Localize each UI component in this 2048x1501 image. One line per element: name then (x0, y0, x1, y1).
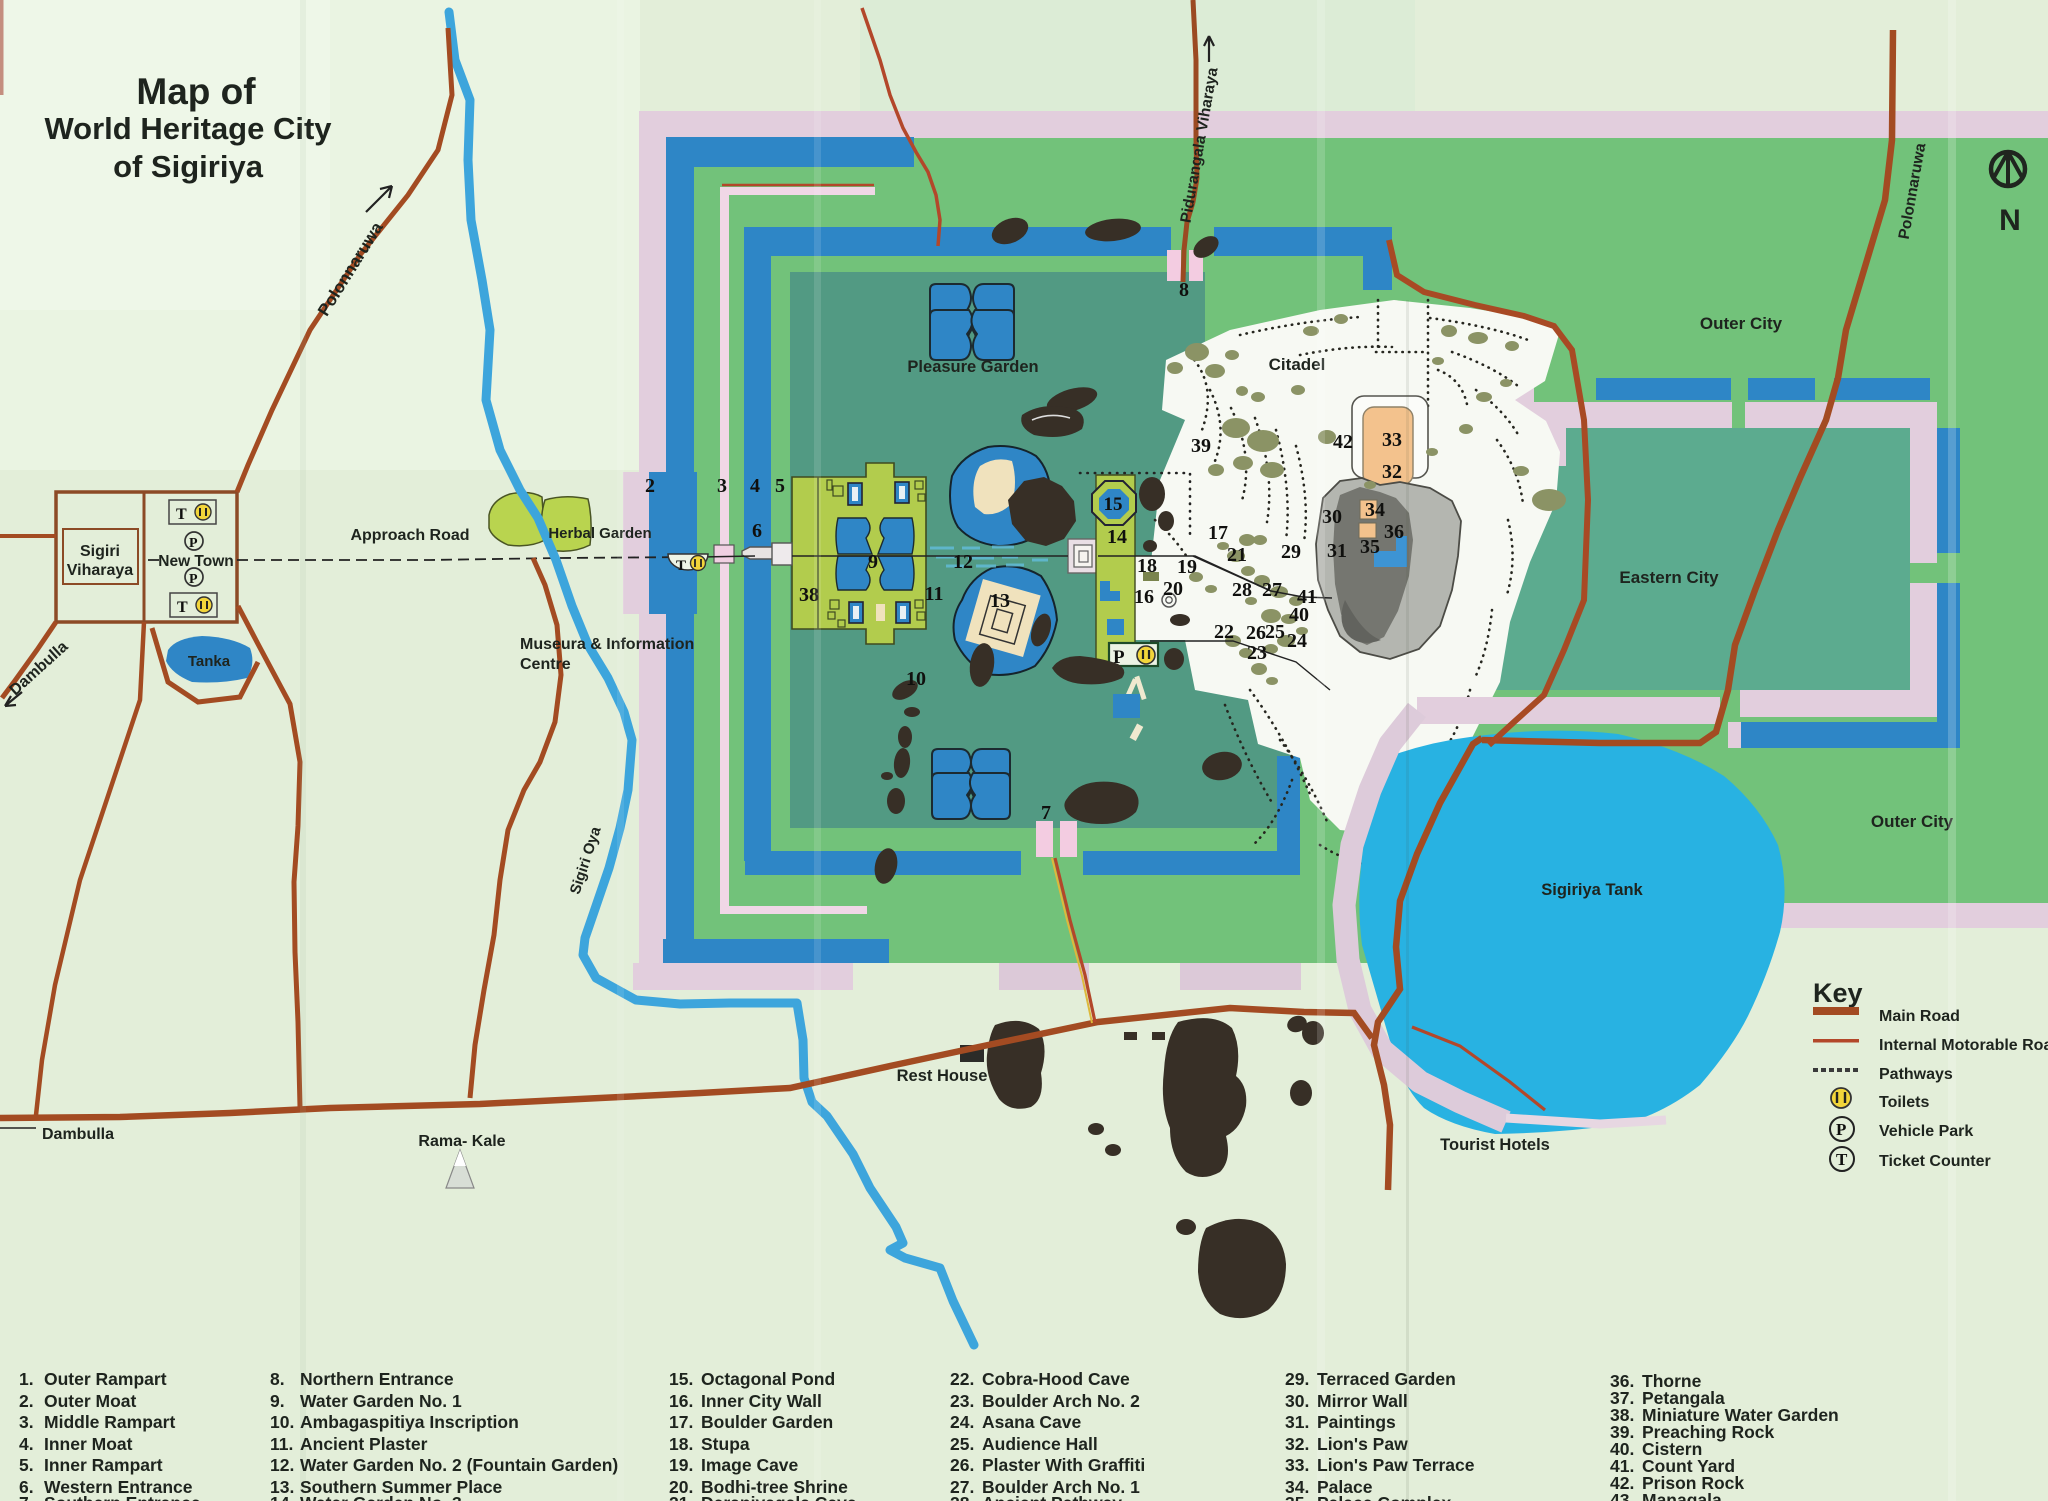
svg-text:Water Garden No. 2 (Fountain G: Water Garden No. 2 (Fountain Garden) (300, 1455, 618, 1475)
svg-text:9: 9 (868, 551, 878, 573)
svg-text:25: 25 (1265, 621, 1285, 643)
svg-text:18: 18 (1137, 555, 1157, 577)
svg-text:Octagonal Pond: Octagonal Pond (701, 1369, 835, 1389)
svg-text:26.: 26. (950, 1455, 974, 1475)
svg-text:Plaster With Graffiti: Plaster With Graffiti (982, 1455, 1145, 1475)
svg-text:Inner Rampart: Inner Rampart (44, 1455, 163, 1475)
svg-text:T: T (676, 558, 686, 574)
svg-text:9.: 9. (270, 1391, 285, 1411)
svg-text:42: 42 (1333, 431, 1353, 453)
svg-text:Lion's Paw: Lion's Paw (1317, 1434, 1408, 1454)
svg-text:16.: 16. (669, 1391, 693, 1411)
svg-text:Sigiriya Tank: Sigiriya Tank (1541, 881, 1643, 899)
svg-text:29.: 29. (1285, 1369, 1309, 1389)
svg-text:Rest House: Rest House (897, 1067, 988, 1085)
svg-text:Inner City Wall: Inner City Wall (701, 1391, 822, 1411)
svg-text:Image Cave: Image Cave (701, 1455, 799, 1475)
svg-text:15: 15 (1104, 494, 1123, 515)
svg-text:Approach Road: Approach Road (350, 527, 469, 544)
svg-text:Middle Rampart: Middle Rampart (44, 1412, 175, 1432)
svg-text:21: 21 (1227, 544, 1247, 566)
svg-text:12.: 12. (270, 1455, 294, 1475)
svg-text:7: 7 (1041, 802, 1051, 824)
svg-text:8.: 8. (270, 1369, 285, 1389)
svg-text:Palace Complex: Palace Complex (1317, 1493, 1451, 1501)
svg-text:Vehicle Park: Vehicle Park (1879, 1123, 1973, 1140)
svg-text:Mirror Wall: Mirror Wall (1317, 1391, 1408, 1411)
svg-text:36: 36 (1384, 521, 1404, 543)
svg-text:Sigiri: Sigiri (80, 543, 120, 560)
svg-text:10: 10 (906, 668, 926, 690)
svg-text:5: 5 (775, 475, 785, 497)
svg-text:39: 39 (1191, 435, 1211, 457)
svg-text:Ambagaspitiya Inscription: Ambagaspitiya Inscription (300, 1412, 519, 1432)
svg-text:Paintings: Paintings (1317, 1412, 1396, 1432)
svg-text:of Sigiriya: of Sigiriya (113, 149, 264, 184)
svg-text:Outer Rampart: Outer Rampart (44, 1369, 167, 1389)
svg-text:1.: 1. (19, 1369, 34, 1389)
svg-text:27: 27 (1262, 579, 1282, 601)
svg-text:19: 19 (1177, 556, 1197, 578)
svg-text:Pathways: Pathways (1879, 1066, 1953, 1083)
svg-text:7.: 7. (19, 1493, 34, 1501)
svg-text:43.: 43. (1610, 1490, 1634, 1501)
svg-text:Lion's Paw Terrace: Lion's Paw Terrace (1317, 1455, 1475, 1475)
svg-text:33.: 33. (1285, 1455, 1309, 1475)
svg-text:14.: 14. (270, 1493, 294, 1501)
svg-text:Citadel: Citadel (1269, 355, 1326, 374)
svg-text:New Town: New Town (158, 553, 234, 570)
svg-text:Tourist Hotels: Tourist Hotels (1440, 1136, 1550, 1154)
svg-text:Managala: Managala (1642, 1490, 1722, 1501)
svg-text:30.: 30. (1285, 1391, 1309, 1411)
svg-text:T: T (177, 599, 188, 616)
svg-text:Centre: Centre (520, 656, 571, 673)
svg-text:Map of: Map of (136, 71, 256, 112)
svg-text:Deraniyagala Cave: Deraniyagala Cave (701, 1493, 857, 1501)
svg-text:World Heritage City: World Heritage City (44, 111, 332, 146)
svg-text:14: 14 (1107, 526, 1127, 548)
svg-text:23: 23 (1247, 642, 1267, 664)
svg-text:Viharaya: Viharaya (67, 562, 134, 579)
svg-text:Boulder Garden: Boulder Garden (701, 1412, 833, 1432)
svg-text:Pleasure Garden: Pleasure Garden (907, 358, 1038, 376)
svg-text:Outer Moat: Outer Moat (44, 1391, 137, 1411)
svg-text:24.: 24. (950, 1412, 974, 1432)
svg-text:Ticket Counter: Ticket Counter (1879, 1153, 1991, 1170)
svg-text:T: T (176, 506, 187, 523)
svg-text:22: 22 (1214, 621, 1234, 643)
svg-text:11: 11 (925, 583, 944, 605)
svg-text:2.: 2. (19, 1391, 34, 1411)
svg-text:16: 16 (1134, 586, 1154, 608)
svg-text:35: 35 (1360, 536, 1380, 558)
svg-text:P: P (1836, 1120, 1846, 1139)
svg-text:Main Road: Main Road (1879, 1008, 1960, 1025)
svg-text:4: 4 (750, 475, 760, 497)
svg-text:4.: 4. (19, 1434, 34, 1454)
svg-text:32: 32 (1382, 461, 1402, 483)
svg-text:P: P (189, 536, 198, 551)
svg-text:21.: 21. (669, 1493, 693, 1501)
svg-text:Water Garden No. 1: Water Garden No. 1 (300, 1391, 462, 1411)
svg-text:Cobra-Hood Cave: Cobra-Hood Cave (982, 1369, 1130, 1389)
svg-text:25.: 25. (950, 1434, 974, 1454)
svg-text:P: P (189, 572, 198, 587)
svg-text:28.: 28. (950, 1493, 974, 1501)
svg-text:13: 13 (990, 590, 1010, 612)
svg-text:17: 17 (1208, 522, 1228, 544)
svg-text:41: 41 (1297, 586, 1317, 608)
svg-text:T: T (1836, 1150, 1848, 1169)
svg-text:6: 6 (752, 520, 762, 542)
svg-text:28: 28 (1232, 579, 1252, 601)
svg-text:Rama- Kale: Rama- Kale (418, 1133, 505, 1150)
svg-text:Asana Cave: Asana Cave (982, 1412, 1081, 1432)
svg-text:32.: 32. (1285, 1434, 1309, 1454)
svg-text:3.: 3. (19, 1412, 34, 1432)
svg-text:Southern Entrance: Southern Entrance (44, 1493, 201, 1501)
svg-text:20: 20 (1163, 578, 1183, 600)
svg-text:Northern Entrance: Northern Entrance (300, 1369, 454, 1389)
svg-text:2: 2 (645, 475, 655, 497)
svg-text:Eastern City: Eastern City (1619, 568, 1719, 587)
svg-text:N: N (1999, 204, 2021, 237)
svg-text:Herbal Garden: Herbal Garden (548, 525, 651, 542)
svg-text:15.: 15. (669, 1369, 693, 1389)
svg-text:Water Garden No. 3: Water Garden No. 3 (300, 1493, 462, 1501)
svg-text:Tanka: Tanka (188, 653, 231, 670)
svg-text:17.: 17. (669, 1412, 693, 1432)
svg-text:Toilets: Toilets (1879, 1094, 1929, 1111)
svg-text:24: 24 (1287, 630, 1307, 652)
svg-text:19.: 19. (669, 1455, 693, 1475)
svg-text:Ancient Plaster: Ancient Plaster (300, 1434, 428, 1454)
svg-text:23.: 23. (950, 1391, 974, 1411)
svg-text:34: 34 (1365, 499, 1385, 521)
svg-text:11.: 11. (270, 1434, 293, 1454)
svg-text:Terraced Garden: Terraced Garden (1317, 1369, 1456, 1389)
svg-text:Outer City: Outer City (1700, 314, 1783, 333)
svg-text:31.: 31. (1285, 1412, 1309, 1432)
svg-text:Museura & Information: Museura & Information (520, 636, 694, 653)
svg-text:31: 31 (1327, 540, 1347, 562)
svg-text:Audience Hall: Audience Hall (982, 1434, 1098, 1454)
svg-text:3: 3 (717, 475, 727, 497)
svg-text:35.: 35. (1285, 1493, 1309, 1501)
svg-text:Outer City: Outer City (1871, 812, 1954, 831)
svg-text:29: 29 (1281, 541, 1301, 563)
svg-text:18.: 18. (669, 1434, 693, 1454)
svg-text:Boulder Arch No. 2: Boulder Arch No. 2 (982, 1391, 1140, 1411)
svg-text:22.: 22. (950, 1369, 974, 1389)
svg-text:12: 12 (953, 551, 973, 573)
svg-text:33: 33 (1382, 429, 1402, 451)
svg-text:Dambulla: Dambulla (42, 1126, 114, 1143)
svg-text:5.: 5. (19, 1455, 34, 1475)
svg-text:Internal Motorable Roads: Internal Motorable Roads (1879, 1037, 2048, 1054)
svg-text:Inner Moat: Inner Moat (44, 1434, 133, 1454)
svg-text:Ancient Pathway: Ancient Pathway (982, 1493, 1122, 1501)
svg-text:Key: Key (1813, 978, 1863, 1008)
svg-text:10.: 10. (270, 1412, 294, 1432)
svg-text:8: 8 (1179, 279, 1189, 301)
svg-text:26: 26 (1246, 622, 1266, 644)
svg-text:Stupa: Stupa (701, 1434, 750, 1454)
